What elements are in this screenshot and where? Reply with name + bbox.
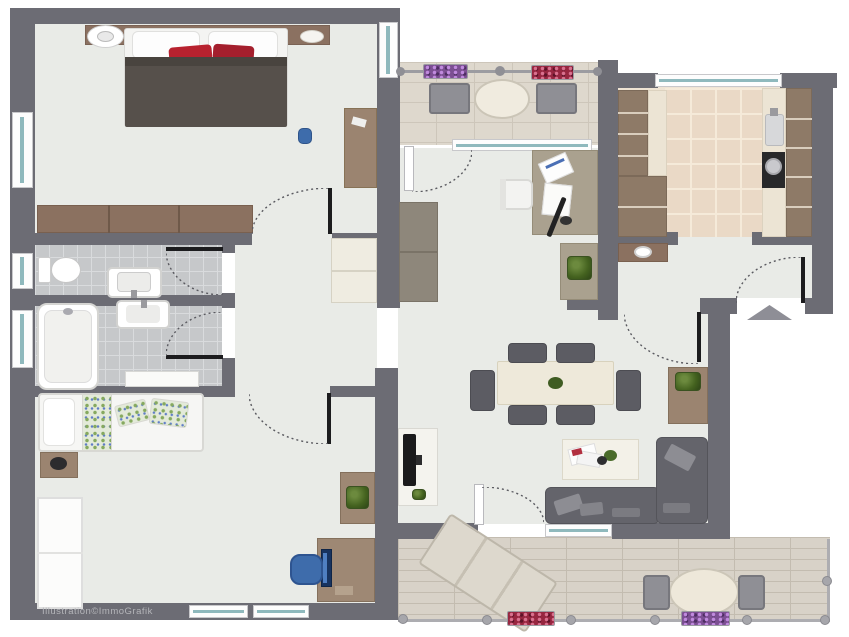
- bath-cabinet: [125, 371, 199, 387]
- sofa-cushion-3: [612, 508, 640, 517]
- duvet-fold: [125, 57, 287, 66]
- window-office-balcony-glass: [456, 144, 588, 147]
- terrace-post-2: [482, 615, 492, 625]
- balcony-railing-knob-2: [495, 66, 505, 76]
- dining-table-plant: [548, 377, 563, 389]
- kitchen-counter-left: [648, 90, 667, 176]
- kitchen-sink: [765, 114, 784, 146]
- sofa-cushion-4: [663, 503, 690, 513]
- wall-kitchen-top-left: [598, 73, 658, 88]
- bedroom-desk-chair: [298, 128, 312, 144]
- hall-dresser-line: [331, 270, 377, 272]
- entry-door-arc: [736, 257, 802, 303]
- wall-living-right: [708, 312, 730, 539]
- wall-top: [10, 8, 400, 24]
- kids-desk-chair: [290, 554, 323, 585]
- tv: [403, 434, 416, 486]
- shell-decor: [300, 30, 324, 43]
- kitchen-cab-right-div-4: [786, 206, 812, 208]
- kitchen-sink-tap: [770, 108, 778, 116]
- window-bath1-left-glass: [20, 257, 24, 285]
- terrace-post-1: [398, 614, 408, 624]
- kitchen-cab-left-div-2: [618, 133, 648, 135]
- terrace-post-3: [566, 615, 576, 625]
- kids-bed-pillow: [43, 398, 75, 446]
- balcony-flowerbox-purple: [423, 64, 468, 79]
- office-chair-back: [500, 179, 506, 210]
- kids-nightstand-decor: [50, 457, 67, 470]
- toilet-bowl: [51, 257, 81, 283]
- balcony-railing-knob-1: [396, 67, 405, 76]
- living-sideboard-plant: [675, 372, 701, 391]
- window-bedroom-left-glass: [20, 117, 24, 183]
- bedside-lamp-inner: [97, 31, 114, 42]
- sideboard-divider-2: [178, 205, 180, 233]
- sink-bath1-tap: [131, 290, 137, 298]
- bedroom-sideboard: [37, 205, 253, 233]
- wall-hall-right-upper: [377, 150, 400, 308]
- window-living-bottom-glass: [549, 529, 608, 532]
- terrace-post-5: [742, 615, 752, 625]
- floor-plan: Illustration©ImmoGrafik: [0, 0, 849, 637]
- window-kids-1-glass: [193, 610, 244, 613]
- sink-bath2-tap: [141, 300, 147, 308]
- entry-arrow: [747, 305, 792, 320]
- wall-kitchen-right: [812, 73, 833, 312]
- kitchen-cab-right-div-2: [786, 147, 812, 149]
- window-bed-balcony-glass: [386, 26, 390, 74]
- terrace-post-7: [822, 576, 832, 586]
- wall-kitchen-left: [598, 73, 618, 320]
- kitchen-pot: [765, 158, 782, 175]
- window-kitchen-glass: [659, 79, 778, 82]
- dining-chair-left: [470, 370, 495, 411]
- terrace-flowerbox-red: [507, 611, 555, 626]
- kids-monitor-screen: [323, 553, 327, 583]
- bathtub-tap: [63, 308, 73, 315]
- window-kids-2-glass: [257, 610, 305, 613]
- terrace-chair-left: [643, 575, 670, 610]
- watermark-text: Illustration©ImmoGrafik: [42, 606, 153, 617]
- bath1-door-arc: [166, 251, 223, 295]
- dining-chair-bottom-2: [556, 405, 595, 425]
- balcony-chair-right: [536, 83, 577, 114]
- office-wardrobe-line: [399, 251, 438, 253]
- office-plant: [567, 256, 592, 280]
- wall-bath-right-mid: [222, 293, 235, 308]
- bathtub-inner: [44, 310, 92, 383]
- balcony-flowerbox-red: [531, 65, 574, 80]
- wall-hall-right-lower: [375, 368, 398, 620]
- dining-chair-bottom-1: [508, 405, 547, 425]
- balcony-door-arc: [412, 150, 472, 192]
- wall-vestibule-bottom-right: [805, 298, 833, 314]
- kids-desk-drawer: [335, 586, 353, 595]
- office-equipment-dot: [560, 216, 572, 225]
- terrace-table: [669, 568, 739, 616]
- window-bath2-left-glass: [20, 314, 24, 364]
- dining-chair-top-1: [508, 343, 547, 363]
- kitchen-cab-left-div-1: [618, 112, 648, 114]
- wall-kids-top-stub: [330, 386, 377, 397]
- kids-door-arc: [249, 393, 328, 444]
- toilet-tank: [38, 257, 51, 283]
- kitchen-cab-right-div-1: [786, 118, 812, 120]
- dining-chair-top-2: [556, 343, 595, 363]
- balcony-table: [474, 79, 530, 119]
- entry-bowl: [634, 246, 652, 258]
- bedroom-door-arc: [252, 188, 330, 234]
- dining-chair-right: [616, 370, 641, 411]
- kitchen-tile-floor: [665, 88, 764, 237]
- duvet: [125, 57, 287, 127]
- wall-bath-right-low: [222, 358, 235, 388]
- bath2-door-arc: [166, 312, 223, 356]
- terrace-post-6: [820, 615, 830, 625]
- kids-bed-duvet: [82, 394, 112, 451]
- living-door-arc: [624, 312, 698, 364]
- sofa-cushion-2: [579, 502, 603, 516]
- tv-foot: [416, 455, 422, 465]
- kitchen-cab-left-div-3: [618, 155, 648, 157]
- kids-cushion-2: [149, 398, 190, 428]
- kids-wardrobe-line: [37, 552, 83, 554]
- terrace-post-4: [650, 615, 660, 625]
- tv-board-plant: [412, 489, 426, 500]
- terrace-rail-bottom: [398, 619, 830, 622]
- kids-plant: [346, 486, 369, 509]
- balcony-chair-left: [429, 83, 470, 114]
- kitchen-cabinet-right-column: [786, 88, 812, 237]
- sideboard-divider-1: [108, 205, 110, 233]
- coffee-table-bowl: [597, 456, 607, 465]
- balcony-railing-knob-3: [593, 67, 602, 76]
- kitchen-cab-right-div-3: [786, 176, 812, 178]
- wall-bath-right-top: [222, 243, 235, 253]
- terrace-chair-right: [738, 575, 765, 610]
- wall-bedroom-bottom: [10, 233, 252, 245]
- kitchen-cab-low-div: [618, 206, 667, 208]
- terrace-flowerbox-purple: [681, 611, 730, 626]
- sink-bath1-basin: [117, 272, 151, 292]
- terrace-door-arc: [482, 487, 544, 524]
